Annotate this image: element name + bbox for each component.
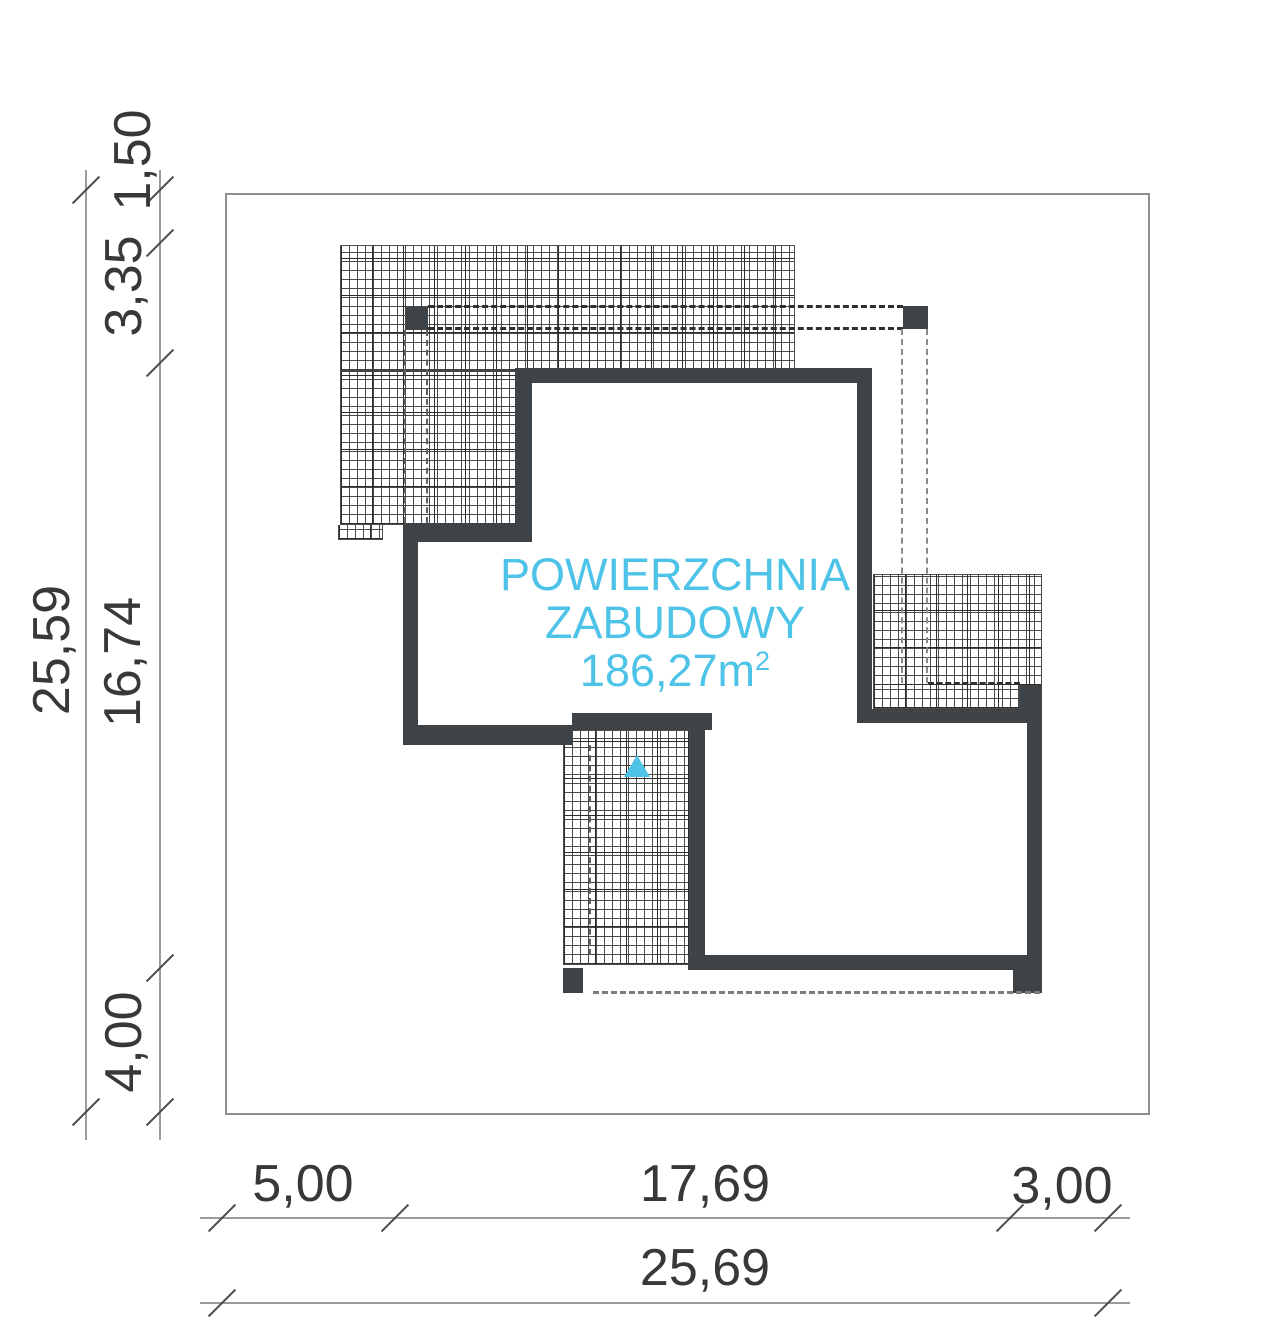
wall-left	[403, 523, 418, 745]
site-plan-canvas: POWIERZCHNIA ZABUDOWY 186,27m2 1,50 3,35…	[0, 0, 1280, 1327]
wall-right-step-block	[1020, 685, 1042, 709]
dashed-right-column-line-right	[926, 329, 928, 683]
area-label: POWIERZCHNIA ZABUDOWY 186,27m2	[465, 551, 885, 695]
dashed-eave-line-lower	[428, 327, 903, 330]
wall-stairs-right	[690, 730, 705, 965]
wall-top	[515, 368, 872, 383]
dim-label-3-35: 3,35	[94, 235, 154, 336]
wall-lower-left-band	[403, 725, 572, 745]
dim-label-25-59: 25,59	[22, 585, 82, 715]
dim-label-25-69: 25,69	[640, 1238, 770, 1298]
stairs-corner-block	[563, 968, 583, 993]
dashed-left-column-line-left	[404, 330, 406, 523]
area-label-value: 186,27m2	[465, 647, 885, 695]
dim-line-bottom-segments	[200, 1217, 1130, 1219]
dim-label-16-74: 16,74	[93, 597, 153, 727]
wall-right-lower	[1027, 709, 1042, 955]
roof-hatch-left	[340, 370, 517, 525]
area-label-line1: POWIERZCHNIA	[465, 551, 885, 599]
dim-label-4-00: 4,00	[94, 991, 154, 1092]
dim-label-1-50: 1,50	[103, 109, 163, 210]
dim-label-17-69: 17,69	[640, 1154, 770, 1214]
dim-label-3-00: 3,00	[1011, 1156, 1112, 1216]
dashed-stairs-line	[589, 745, 591, 955]
dashed-right-column-line-left	[901, 329, 903, 683]
column-post-left	[405, 307, 428, 330]
column-post-right	[903, 306, 928, 329]
terrace-hatch	[873, 574, 1042, 685]
dashed-terrace-edge	[928, 682, 1020, 685]
dim-line-left-segments	[159, 170, 161, 1140]
roof-hatch-step	[338, 525, 383, 540]
bottom-right-corner-block	[1013, 970, 1042, 993]
dim-label-5-00: 5,00	[252, 1154, 353, 1214]
area-label-line2: ZABUDOWY	[465, 599, 885, 647]
dashed-bottom-terrace-edge	[593, 991, 1040, 994]
dashed-eave-line-upper	[428, 305, 903, 308]
wall-left-band	[403, 523, 532, 542]
dashed-left-column-line-right	[426, 330, 428, 523]
wall-upper-left	[515, 368, 532, 542]
wall-terrace-bottom-band	[857, 709, 1042, 723]
entrance-arrow-icon	[624, 755, 650, 777]
area-superscript: 2	[755, 646, 770, 676]
wall-stairs-top-band	[572, 713, 712, 730]
wall-bottom	[688, 955, 1042, 970]
dim-line-bottom-total	[200, 1302, 1130, 1304]
dim-line-left-total	[85, 170, 87, 1140]
terrace-hatch-lower	[873, 685, 1020, 709]
